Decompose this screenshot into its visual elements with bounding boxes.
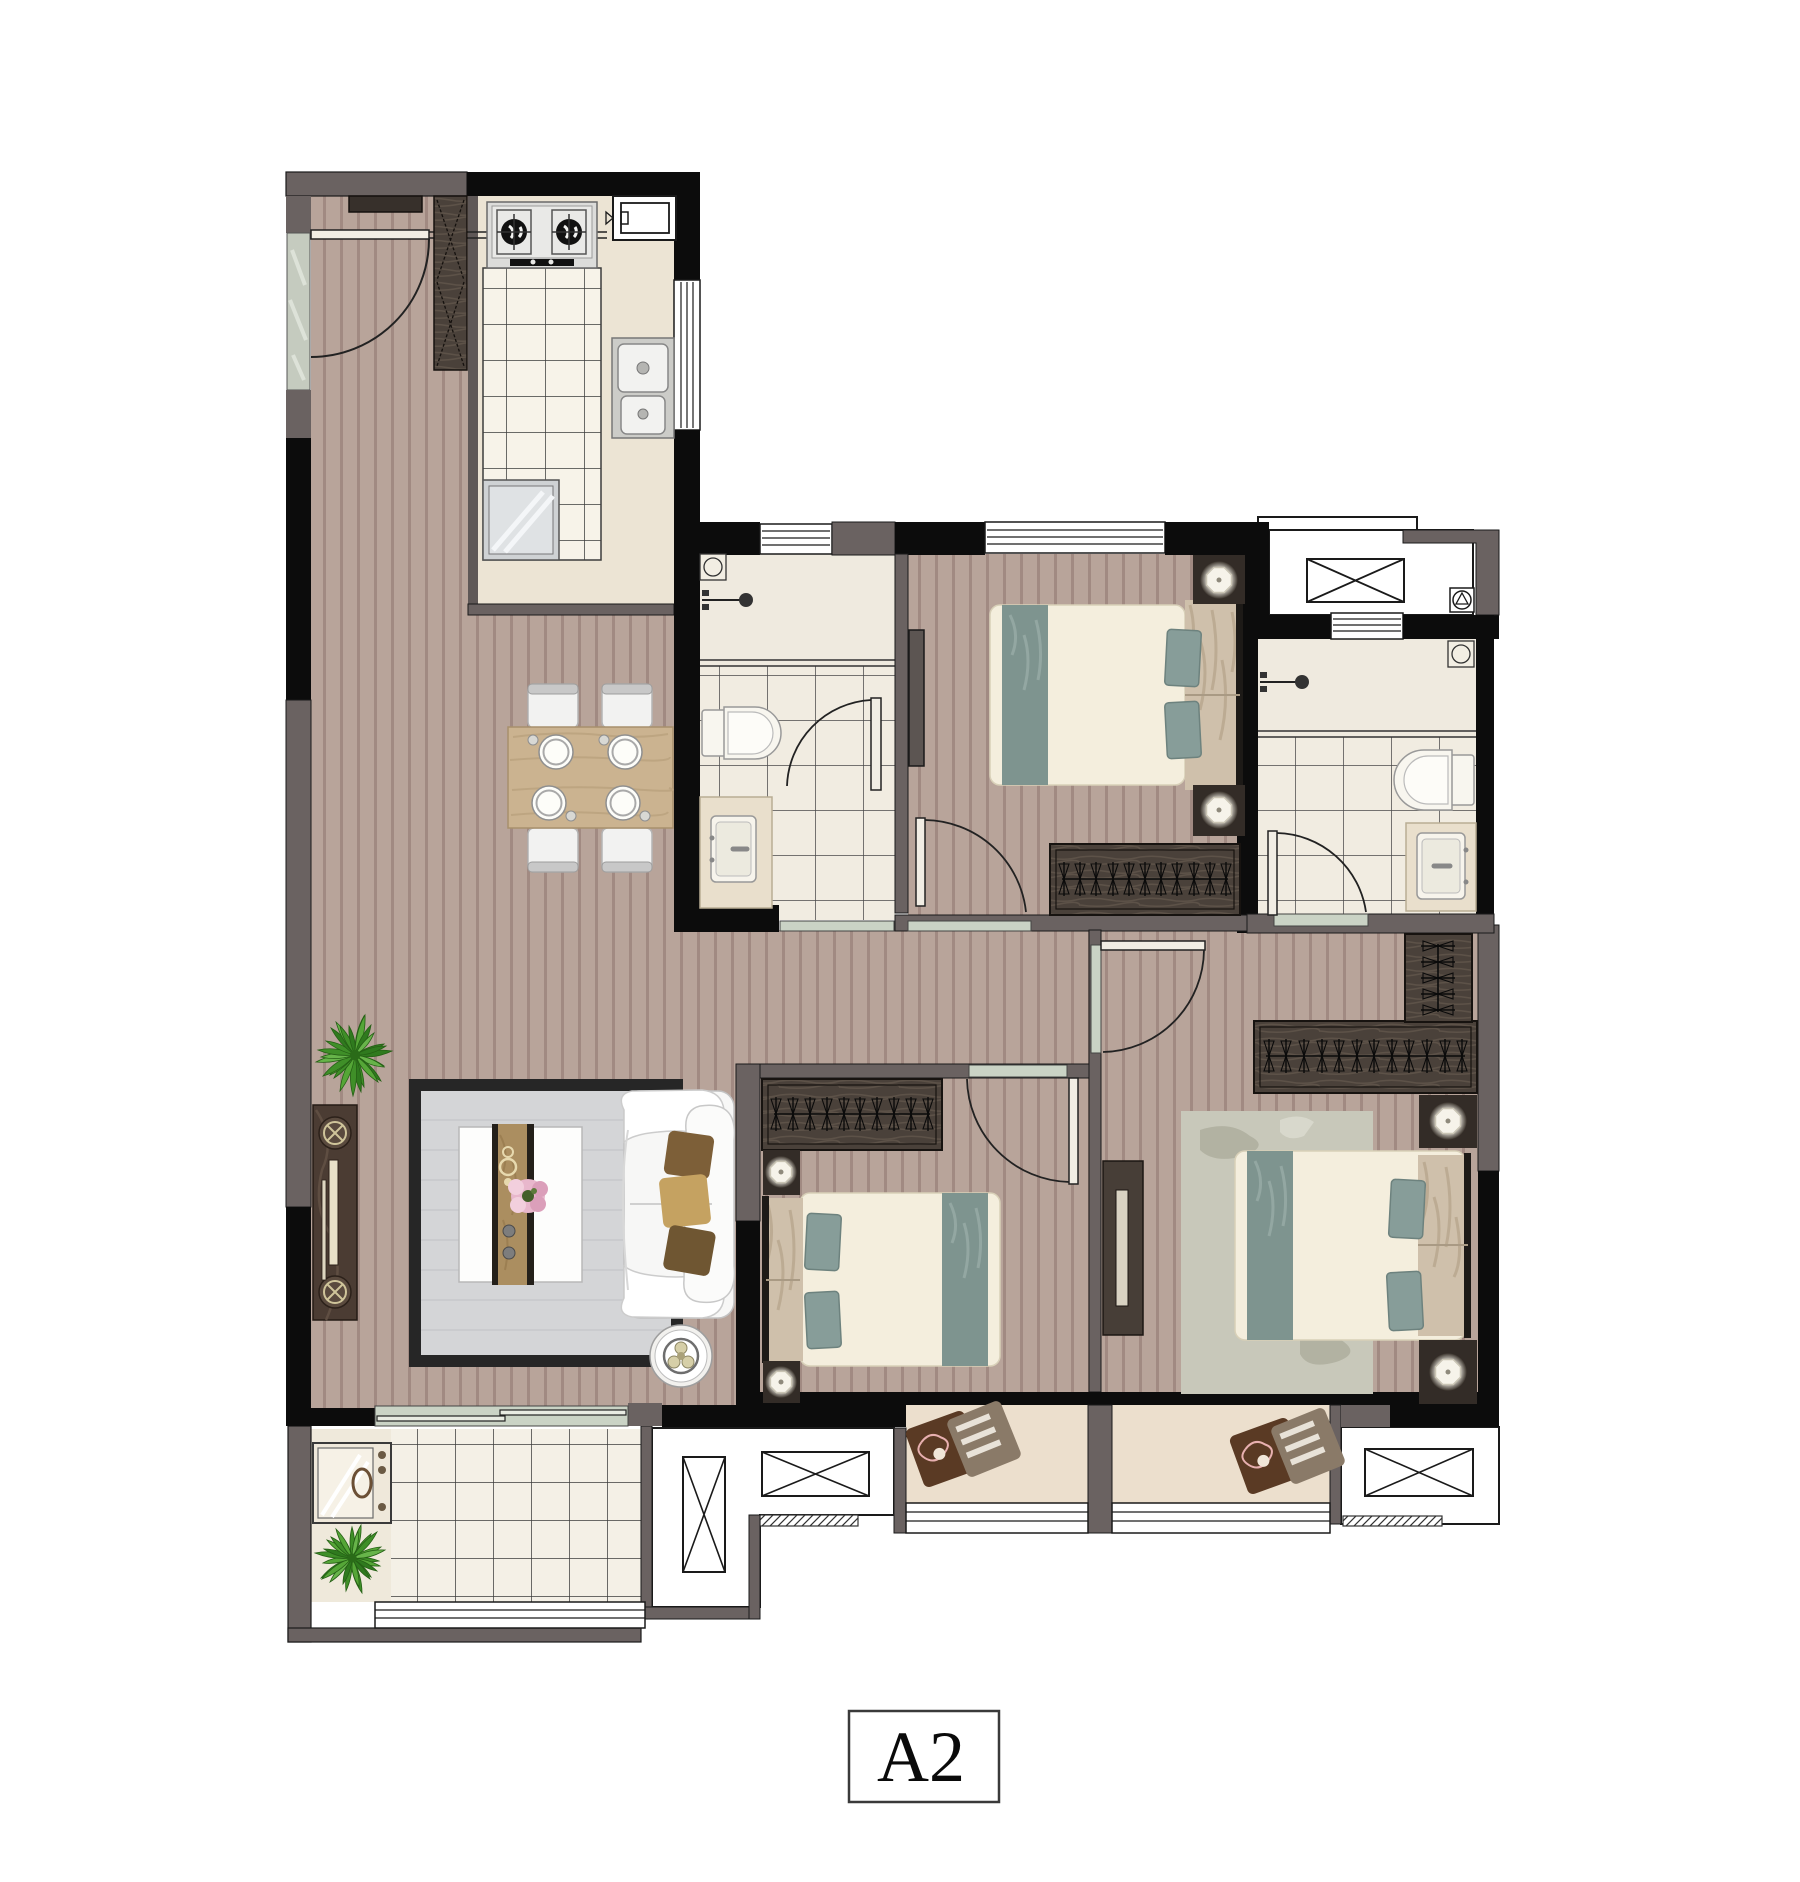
svg-text:A2: A2 [877,1717,965,1797]
